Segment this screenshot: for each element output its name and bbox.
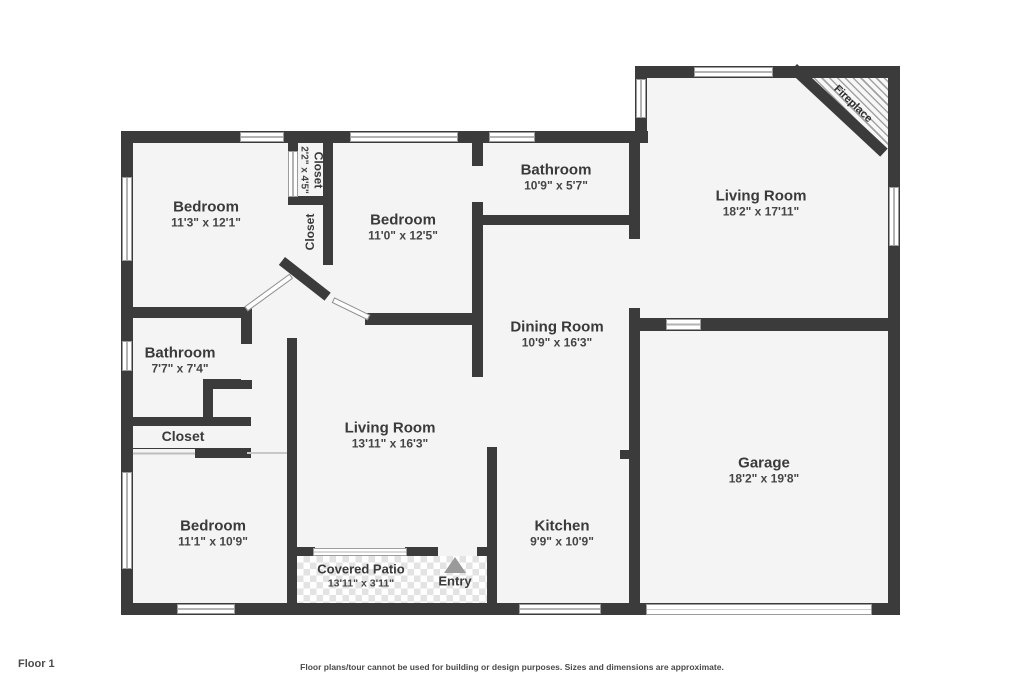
room-name: Bedroom [178,518,248,535]
garage-door [646,604,872,615]
wall-bedroom1-bottom [121,307,245,318]
room-name: Closet [304,214,318,251]
wall-dining-living-upper [629,143,640,239]
room-label-closet-mid: Closet [304,214,318,251]
room-name: Bedroom [171,199,241,216]
room-label-entry: Entry [438,575,471,590]
room-label-bathroom-left: Bathroom 7'7" x 7'4" [145,345,216,378]
room-name: Dining Room [510,319,603,336]
room-name: Closet [311,146,325,194]
room-dims: 13'11" x 16'3" [345,437,436,453]
wall-patio-top-b [405,547,438,556]
window [122,472,132,569]
room-label-kitchen: Kitchen 9'9" x 10'9" [530,518,594,551]
room-dims: 10'9" x 5'7" [521,179,592,195]
door-gap [241,344,252,380]
window [313,548,407,556]
room-dims: 9'9" x 10'9" [530,535,594,551]
window [889,187,899,246]
wall-closet-divider [288,196,333,205]
room-label-dining-room: Dining Room 10'9" x 16'3" [510,319,603,352]
floor-plan: Bedroom 11'3" x 12'1" Closet 2'2" x 4'5"… [0,0,1024,683]
wall-livingcenter-left [287,338,297,603]
room-dims: 11'1" x 10'9" [178,535,248,551]
room-name: Entry [438,575,471,590]
room-dims: 2'2" x 4'5" [298,146,311,194]
window [240,132,284,142]
room-name: Covered Patio [317,563,404,578]
room-label-bathroom-top: Bathroom 10'9" x 5'7" [521,162,592,195]
wall-bedroom2-bottom [365,313,483,325]
room-label-covered-patio: Covered Patio 13'11" x 3'11" [317,563,404,592]
room-dims: 18'2" x 19'8" [729,472,799,488]
room-label-living-room-right: Living Room 18'2" x 17'11" [716,188,807,221]
window [177,604,235,614]
room-name: Living Room [716,188,807,205]
wall-bathleft-bottom [121,417,251,426]
room-dims: 7'7" x 7'4" [145,362,216,378]
room-dims: 10'9" x 16'3" [510,336,603,352]
room-label-living-room-center: Living Room 13'11" x 16'3" [345,420,436,453]
closet-door [133,449,195,458]
window [122,177,132,261]
room-name: Bedroom [368,212,438,229]
wall-dining-left [472,313,483,377]
room-name: Bathroom [145,345,216,362]
wall-bathtop-bottom [483,215,640,225]
room-label-garage: Garage 18'2" x 19'8" [729,455,799,488]
window [350,132,458,142]
room-label-bedroom-top-mid: Bedroom 11'0" x 12'5" [368,212,438,245]
room-label-closet-top: Closet 2'2" x 4'5" [298,146,325,194]
room-name: Closet [162,428,205,444]
room-label-bedroom-bottom-left: Bedroom 11'1" x 10'9" [178,518,248,551]
window [666,319,701,330]
room-label-bedroom-top-left: Bedroom 11'3" x 12'1" [171,199,241,232]
wall-closet1-left [288,131,298,151]
door-gap [629,239,640,308]
door-gap [472,166,483,202]
window [694,67,773,77]
disclaimer-text: Floor plans/tour cannot be used for buil… [0,662,1024,672]
room-name: Kitchen [530,518,594,535]
room-dims: 13'11" x 3'11" [317,578,404,592]
wall-kitchen-left [487,447,497,605]
room-dims: 11'3" x 12'1" [171,216,241,232]
room-name: Living Room [345,420,436,437]
wall-kitchen-right [629,308,640,615]
window [519,604,601,614]
entry-arrow-icon [444,557,466,573]
room-dims: 18'2" x 17'11" [716,205,807,221]
wall-patio-top-a [287,547,315,556]
room-name: Bathroom [521,162,592,179]
room-label-closet-left: Closet [162,428,205,444]
room-name: Garage [729,455,799,472]
wall-outer-right [888,66,900,615]
window [122,341,132,371]
wall-patio-kitchen-stub [477,547,488,556]
closet-door-opening [288,151,298,197]
window [489,132,535,142]
window [636,79,646,118]
opening-line [247,452,287,454]
room-dims: 11'0" x 12'5" [368,229,438,245]
wall-kitchen-stub [620,450,639,459]
